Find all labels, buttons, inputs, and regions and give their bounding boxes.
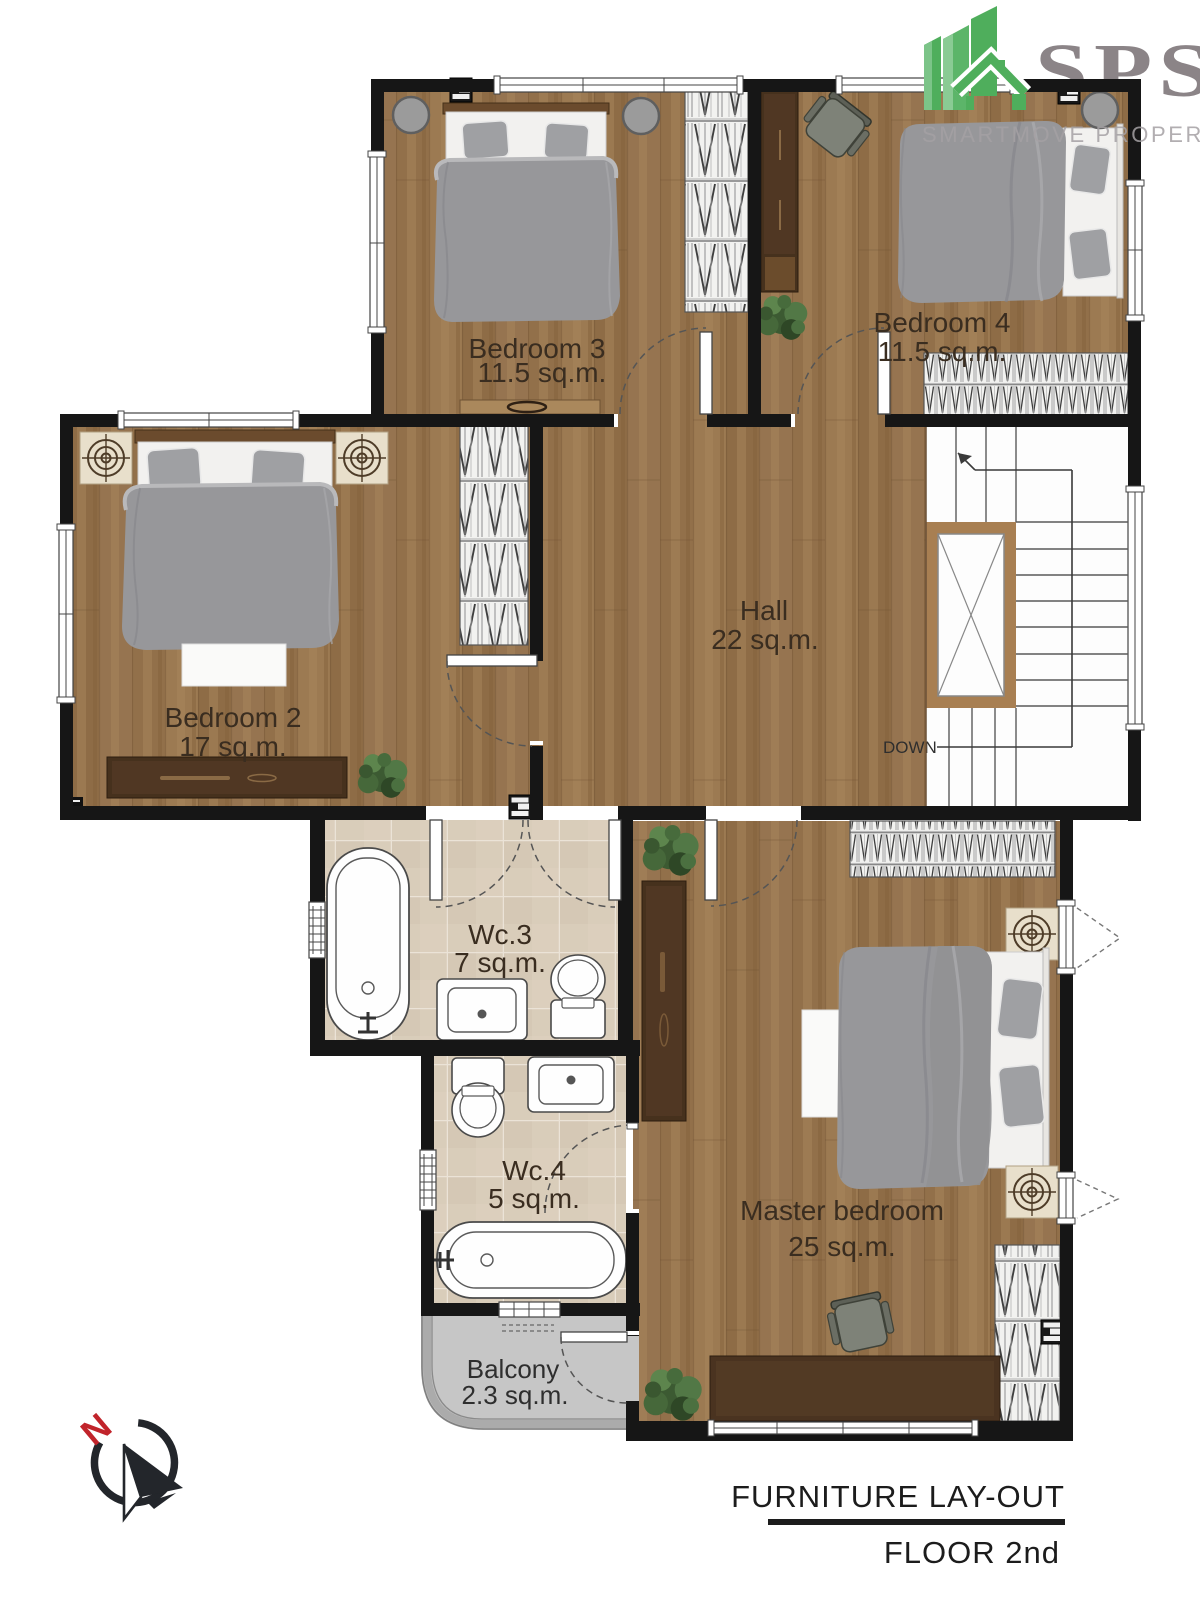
svg-text:25 sq.m.: 25 sq.m. <box>788 1231 895 1262</box>
svg-text:22 sq.m.: 22 sq.m. <box>711 624 818 655</box>
svg-text:2.3 sq.m.: 2.3 sq.m. <box>462 1380 569 1410</box>
svg-text:Wc.3: Wc.3 <box>468 919 532 950</box>
svg-text:Hall: Hall <box>740 595 788 626</box>
svg-text:Master bedroom: Master bedroom <box>740 1195 944 1226</box>
svg-text:SMARTMOVE PROPERTY: SMARTMOVE PROPERTY <box>922 122 1200 147</box>
svg-text:Wc.4: Wc.4 <box>502 1155 566 1186</box>
svg-text:FURNITURE LAY-OUT: FURNITURE LAY-OUT <box>731 1479 1065 1514</box>
svg-text:Bedroom 4: Bedroom 4 <box>874 307 1011 338</box>
svg-text:11.5 sq.m.: 11.5 sq.m. <box>478 357 607 388</box>
svg-text:DOWN: DOWN <box>883 738 937 757</box>
svg-text:17 sq.m.: 17 sq.m. <box>179 731 286 762</box>
svg-text:FLOOR 2nd: FLOOR 2nd <box>884 1535 1060 1570</box>
svg-text:Bedroom 2: Bedroom 2 <box>165 702 302 733</box>
svg-text:7 sq.m.: 7 sq.m. <box>454 947 546 978</box>
svg-text:11.5 sq.m.: 11.5 sq.m. <box>878 336 1007 367</box>
svg-text:5 sq.m.: 5 sq.m. <box>488 1183 580 1214</box>
